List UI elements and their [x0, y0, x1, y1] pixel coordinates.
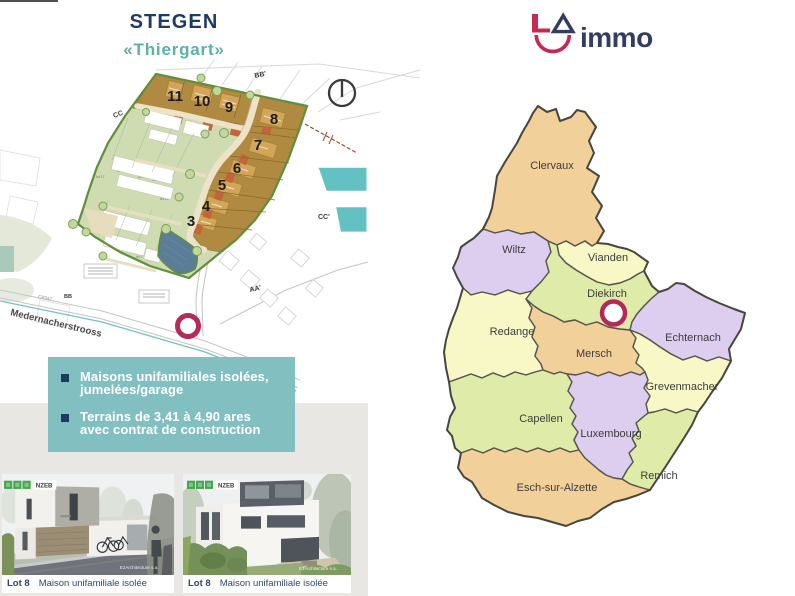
svg-text:8: 8: [270, 111, 278, 128]
svg-text:E2Architecture s.a.: E2Architecture s.a.: [120, 565, 159, 570]
svg-text:E2Architecture s.a.: E2Architecture s.a.: [299, 566, 337, 571]
svg-text:BB': BB': [254, 71, 267, 80]
svg-text:Diekirch: Diekirch: [587, 288, 627, 300]
svg-text:Luxembourg: Luxembourg: [580, 428, 641, 440]
svg-text:7: 7: [254, 137, 262, 154]
svg-text:BB: BB: [64, 294, 72, 300]
svg-text:3: 3: [187, 213, 195, 230]
svg-text:Redange: Redange: [490, 326, 535, 338]
svg-text:10: 10: [194, 93, 211, 110]
svg-text:Clervaux: Clervaux: [530, 160, 574, 172]
svg-text:Echternach: Echternach: [665, 332, 721, 344]
svg-text:5: 5: [218, 177, 226, 194]
svg-text:4: 4: [202, 198, 211, 215]
svg-text:Mersch: Mersch: [576, 348, 612, 360]
svg-text:immo: immo: [580, 22, 653, 53]
svg-text:6: 6: [233, 160, 241, 177]
svg-text:Wiltz: Wiltz: [502, 244, 526, 256]
svg-text:NZEB: NZEB: [218, 482, 235, 489]
svg-text:Grevenmacher: Grevenmacher: [646, 381, 719, 393]
svg-text:Remich: Remich: [640, 470, 677, 482]
svg-text:Esch-sur-Alzette: Esch-sur-Alzette: [517, 482, 598, 494]
svg-text:CC': CC': [318, 214, 330, 221]
svg-text:9: 9: [225, 99, 233, 116]
svg-text:AA': AA': [249, 285, 262, 294]
svg-text:lot 17: lot 17: [96, 175, 105, 179]
svg-text:NZEB: NZEB: [36, 482, 53, 489]
svg-text:Capellen: Capellen: [519, 413, 562, 425]
svg-text:Vianden: Vianden: [588, 252, 628, 264]
svg-text:11: 11: [167, 88, 183, 105]
